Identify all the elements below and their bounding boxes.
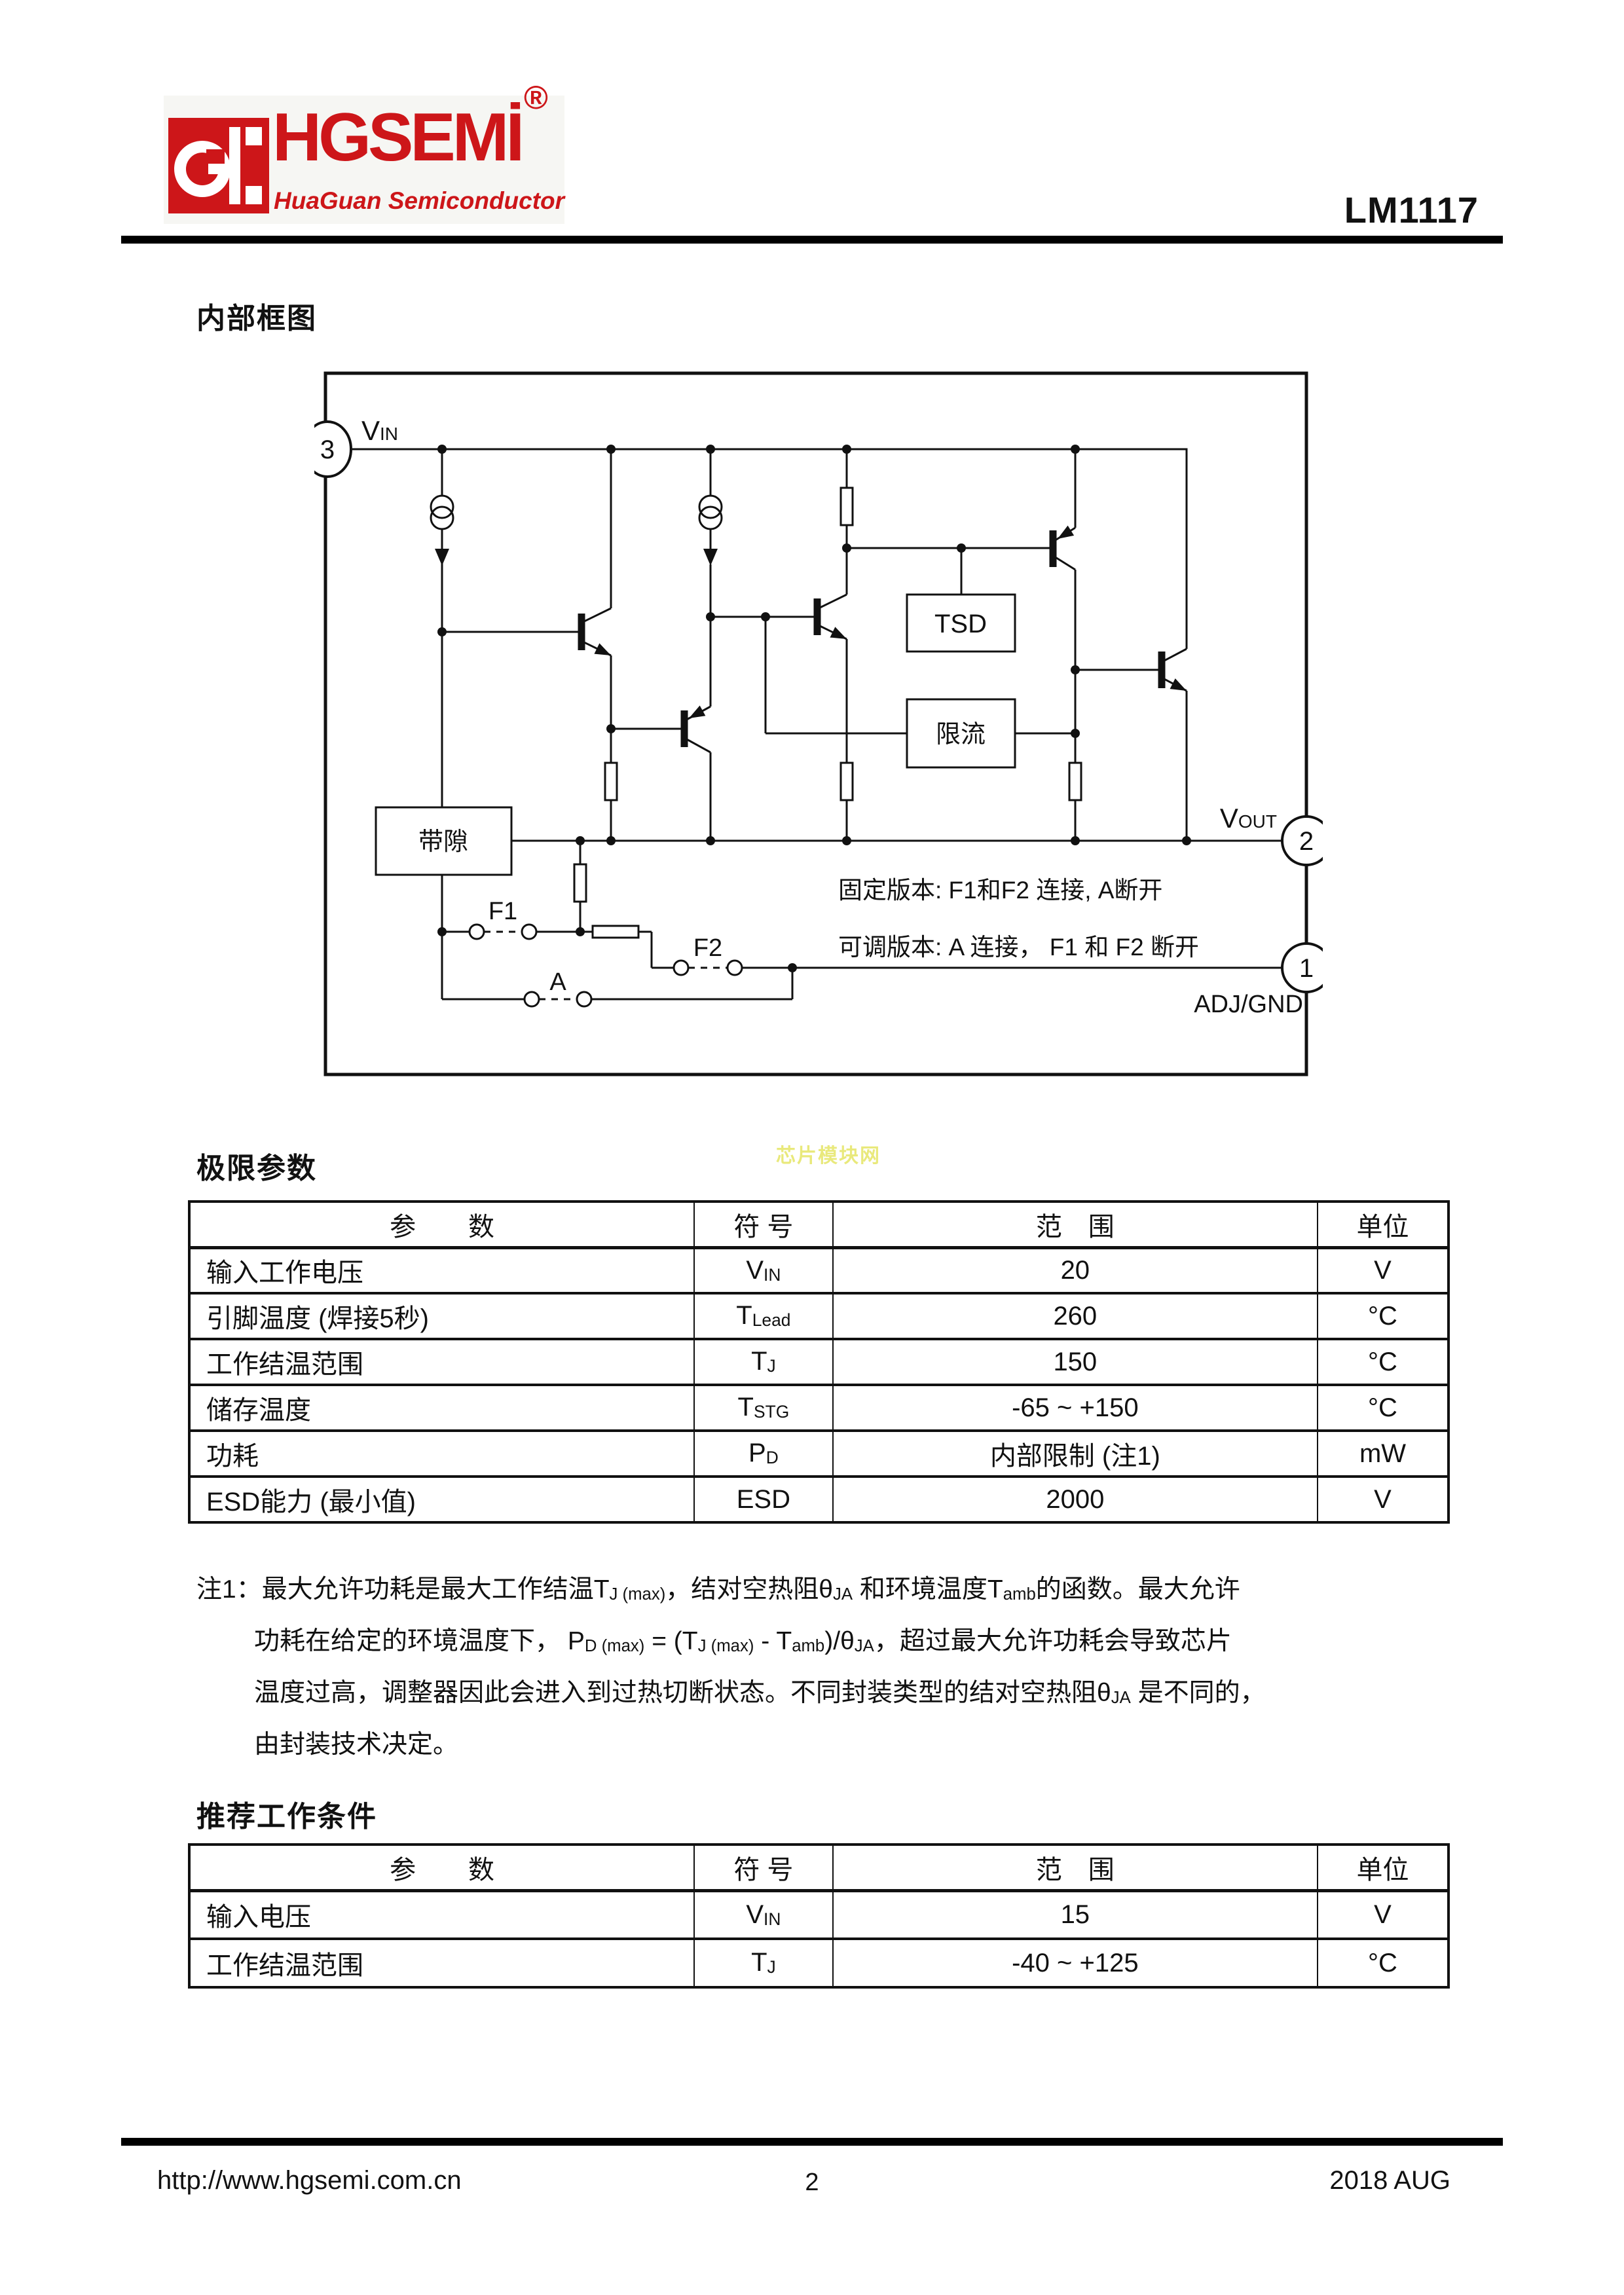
footer-rule (121, 2138, 1503, 2146)
column-header: 参 数 (189, 1845, 694, 1890)
text-segment: T (736, 1301, 752, 1330)
symbol-cell: PD (694, 1431, 833, 1477)
param-cell: ESD能力 (最小值) (189, 1477, 694, 1522)
column-header: 符 号 (694, 1202, 833, 1247)
text-segment: 的函数。最大允许 (1036, 1575, 1240, 1604)
unit-cell: °C (1318, 1339, 1449, 1385)
unit-cell: mW (1318, 1431, 1449, 1477)
text-segment: D (max) (585, 1637, 645, 1655)
bandgap-box-label: 带隙 (418, 828, 468, 856)
unit-cell: °C (1318, 1293, 1449, 1339)
text-segment: amb (792, 1637, 824, 1655)
f2-switch-label: F2 (693, 934, 722, 962)
current-limit-box-label: 限流 (936, 721, 986, 748)
param-cell: 功耗 (189, 1431, 694, 1477)
range-cell: 20 (833, 1247, 1318, 1293)
text-segment: J (max) (698, 1637, 754, 1655)
range-cell: -65 ~ +150 (833, 1385, 1318, 1431)
column-header: 范 围 (833, 1202, 1318, 1247)
text-segment: ，超过最大允许功耗会导致芯片 (874, 1627, 1232, 1655)
section-title-absolute-maximum-ratings: 极限参数 (196, 1145, 317, 1186)
column-header: 符 号 (694, 1845, 833, 1890)
param-cell: 引脚温度 (焊接5秒) (189, 1293, 694, 1339)
a-switch-label: A (549, 968, 566, 996)
table-row: 功耗PD内部限制 (注1)mW (189, 1431, 1449, 1477)
diagram-border (325, 373, 1306, 1074)
text-segment: JA (1111, 1689, 1131, 1707)
text-segment: J (767, 1357, 776, 1376)
table-row: 储存温度TSTG-65 ~ +150°C (189, 1385, 1449, 1431)
symbol-cell: TJ (694, 1939, 833, 1987)
symbol-cell: VIN (694, 1247, 833, 1293)
vout-label: VOUT (1220, 803, 1277, 834)
text-segment: 温度过高，调整器因此会进入到过热切断状态。不同封装类型的结对空热阻θ (254, 1679, 1111, 1707)
pin-circles (314, 422, 1323, 992)
footnote-line: 功耗在给定的环境温度下， PD (max) = (TJ (max) - Tamb… (196, 1618, 1447, 1670)
range-cell: 150 (833, 1339, 1318, 1385)
text-segment: J (767, 1958, 776, 1977)
adjustable-version-note: 可调版本: A 连接， F1 和 F2 断开 (838, 934, 1199, 961)
footnote-line: 注1：最大允许功耗是最大工作结温TJ (max)，结对空热阻θJA 和环境温度T… (196, 1566, 1447, 1618)
text-segment: Lead (752, 1311, 791, 1331)
text-segment: 是不同的， (1131, 1679, 1266, 1707)
watermark: 芯片模块网 (776, 1139, 881, 1168)
pin-2-number: 2 (1299, 827, 1314, 856)
footnote-line: 温度过高，调整器因此会进入到过热切断状态。不同封装类型的结对空热阻θJA 是不同… (196, 1670, 1447, 1721)
text-segment: T (738, 1393, 754, 1422)
unit-cell: V (1318, 1477, 1449, 1522)
symbol-cell: TJ (694, 1339, 833, 1385)
block-diagram: TSD 限流 带隙 3 2 1 (314, 360, 1323, 1087)
pin-3-number: 3 (320, 435, 335, 464)
function-boxes (376, 595, 1015, 875)
recommended-table: 参 数符 号范 围单位 输入电压VIN15V工作结温范围TJ-40 ~ +125… (188, 1843, 1450, 1989)
unit-cell: V (1318, 1890, 1449, 1939)
text-segment: J (max) (610, 1585, 666, 1604)
unit-cell: V (1318, 1247, 1449, 1293)
column-header: 范 围 (833, 1845, 1318, 1890)
param-cell: 输入工作电压 (189, 1247, 694, 1293)
text-segment: D (766, 1448, 779, 1468)
table-row: 输入工作电压VIN20V (189, 1247, 1449, 1293)
table-row: ESD能力 (最小值)ESD2000V (189, 1477, 1449, 1522)
range-cell: 2000 (833, 1477, 1318, 1522)
tsd-box-label: TSD (934, 610, 987, 638)
part-number: LM1117 (1344, 189, 1479, 231)
table-row: 工作结温范围TJ150°C (189, 1339, 1449, 1385)
column-header: 单位 (1318, 1202, 1449, 1247)
range-cell: 260 (833, 1293, 1318, 1339)
text-segment: T (751, 1347, 767, 1376)
limits-table: 参 数符 号范 围单位 输入工作电压VIN20V引脚温度 (焊接5秒)TLead… (188, 1200, 1450, 1524)
footer-date: 2018 AUG (1329, 2166, 1450, 2195)
text-segment: P (748, 1439, 766, 1467)
param-cell: 工作结温范围 (189, 1339, 694, 1385)
text-segment: = (T (644, 1627, 697, 1655)
text-segment: V (746, 1900, 764, 1929)
range-cell: 内部限制 (注1) (833, 1431, 1318, 1477)
table-row: 引脚温度 (焊接5秒)TLead260°C (189, 1293, 1449, 1339)
adj-gnd-label: ADJ/GND (1194, 991, 1303, 1018)
range-cell: -40 ~ +125 (833, 1939, 1318, 1987)
symbol-cell: TLead (694, 1293, 833, 1339)
text-segment: T (751, 1948, 767, 1977)
datasheet-page: HGSEMİ ® HuaGuan Semiconductor LM1117 内部… (0, 0, 1624, 2295)
text-segment: amb (1003, 1585, 1036, 1604)
symbol-cell: VIN (694, 1890, 833, 1939)
param-cell: 工作结温范围 (189, 1939, 694, 1987)
text-segment: IN (764, 1265, 781, 1285)
text-segment: 和环境温度T (853, 1575, 1003, 1604)
logo-subtitle: HuaGuan Semiconductor (274, 187, 564, 215)
footnote: 注1：最大允许功耗是最大工作结温TJ (max)，结对空热阻θJA 和环境温度T… (196, 1566, 1447, 1768)
text-segment: )/θ (824, 1627, 855, 1655)
text-segment: ，结对空热阻θ (665, 1575, 833, 1604)
header-rule (121, 236, 1503, 244)
f1-switch-label: F1 (489, 898, 517, 925)
table-row: 输入电压VIN15V (189, 1890, 1449, 1939)
footnote-line: 由封装技术决定。 (196, 1721, 1447, 1768)
text-segment: - T (754, 1627, 792, 1655)
section-title-recommended-conditions: 推荐工作条件 (196, 1793, 377, 1835)
text-segment: STG (754, 1403, 789, 1422)
limits-table-header-row: 参 数符 号范 围单位 (189, 1202, 1449, 1247)
text-segment: V (746, 1256, 764, 1285)
fixed-version-note: 固定版本: F1和F2 连接, A断开 (838, 877, 1162, 904)
text-segment: JA (855, 1637, 874, 1655)
text-segment: IN (764, 1909, 781, 1929)
vin-label: VIN (361, 415, 398, 446)
unit-cell: °C (1318, 1939, 1449, 1987)
hgsemi-logo-icon (168, 118, 269, 213)
text-segment: 由封装技术决定。 (254, 1731, 458, 1759)
text-segment: 注1：最大允许功耗是最大工作结温T (196, 1575, 610, 1604)
column-header: 参 数 (189, 1202, 694, 1247)
text-segment: ESD (737, 1485, 790, 1514)
text-segment: 功耗在给定的环境温度下， P (254, 1627, 585, 1655)
text-segment: JA (833, 1585, 853, 1604)
param-cell: 输入电压 (189, 1890, 694, 1939)
range-cell: 15 (833, 1890, 1318, 1939)
param-cell: 储存温度 (189, 1385, 694, 1431)
pin-1-number: 1 (1299, 954, 1314, 983)
logo-wordmark: HGSEMİ (272, 103, 521, 172)
section-title-block-diagram: 内部框图 (196, 295, 317, 337)
column-header: 单位 (1318, 1845, 1449, 1890)
unit-cell: °C (1318, 1385, 1449, 1431)
rec-table-header-row: 参 数符 号范 围单位 (189, 1845, 1449, 1890)
table-row: 工作结温范围TJ-40 ~ +125°C (189, 1939, 1449, 1987)
symbol-cell: TSTG (694, 1385, 833, 1431)
symbol-cell: ESD (694, 1477, 833, 1522)
registered-trademark-icon: ® (524, 79, 548, 117)
